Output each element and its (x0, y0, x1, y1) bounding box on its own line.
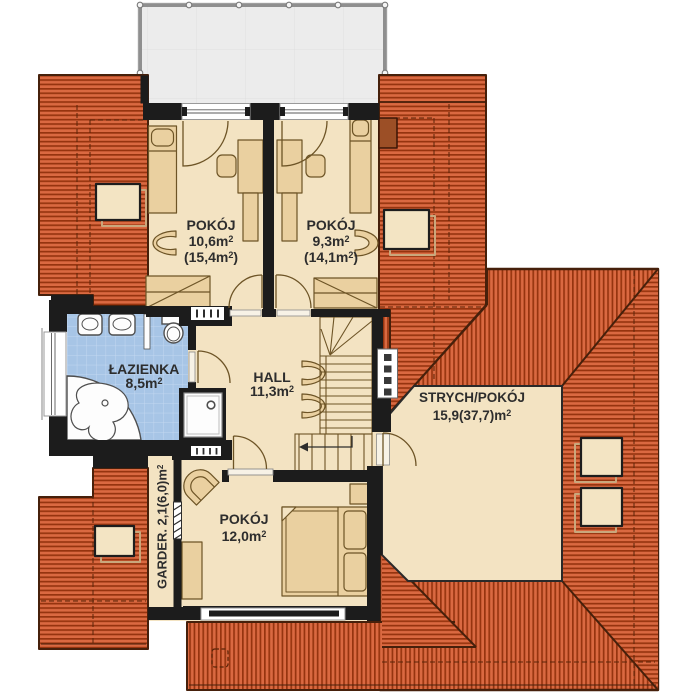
svg-text:POKÓJ: POKÓJ (219, 510, 268, 527)
svg-text:GARDER. 2,1(6,0)m2: GARDER. 2,1(6,0)m2 (155, 464, 170, 589)
svg-text:STRYCH/POKÓJ: STRYCH/POKÓJ (419, 390, 525, 405)
svg-text:POKÓJ: POKÓJ (186, 216, 235, 233)
svg-text:8,5m2: 8,5m2 (126, 375, 163, 391)
svg-text:9,3m2: 9,3m2 (313, 233, 350, 249)
svg-text:POKÓJ: POKÓJ (306, 216, 355, 233)
svg-text:11,3m2: 11,3m2 (250, 383, 294, 399)
svg-text:15,9(37,7)m2: 15,9(37,7)m2 (433, 408, 512, 423)
svg-text:12,0m2: 12,0m2 (222, 528, 267, 544)
svg-text:10,6m2: 10,6m2 (189, 233, 234, 249)
